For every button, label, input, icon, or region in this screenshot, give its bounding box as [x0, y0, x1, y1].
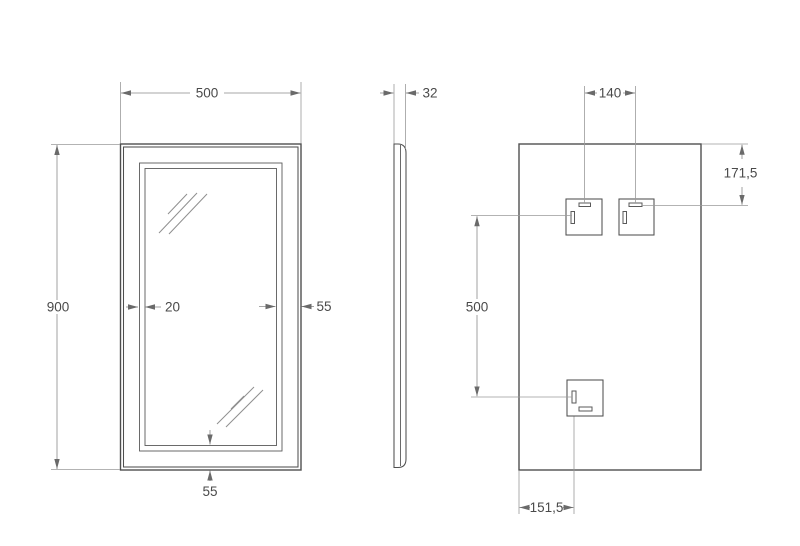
dim-back-top-offset: 171,5 [642, 144, 757, 206]
hatch-line [231, 396, 244, 409]
hatch-line [217, 387, 254, 424]
dim-front-frame-side: 55 [259, 299, 332, 314]
dimension-label: 55 [202, 484, 217, 499]
dim-front-inner-offset: 20 [126, 300, 180, 315]
dim-front-frame-bottom: 55 [202, 430, 217, 499]
mirror-technical-drawing: 500 900 20 55 55 [0, 0, 800, 546]
dim-back-left-offset: 151,5 [519, 417, 574, 516]
dimension-label: 55 [316, 299, 331, 314]
dim-side-depth: 32 [380, 84, 438, 149]
dimension-label: 32 [422, 86, 437, 101]
side-view: 32 [380, 84, 438, 468]
bracket-slot-vertical [572, 391, 576, 403]
dimension-label: 500 [196, 86, 219, 101]
back-view: 140 171,5 500 151,5 [466, 86, 758, 516]
dim-front-width: 500 [121, 82, 302, 144]
hatch-line [159, 193, 197, 233]
mirror-back-panel [519, 144, 701, 470]
dimension-label: 140 [599, 86, 622, 101]
bracket-slot-vertical [623, 212, 627, 224]
bracket-slot-vertical [571, 212, 575, 224]
mirror-side-profile [394, 144, 406, 468]
dimension-label: 171,5 [724, 166, 758, 181]
bracket-slot-horizontal [579, 203, 591, 207]
mounting-bracket-bottom [567, 380, 603, 416]
bracket-slot-horizontal [629, 203, 642, 207]
hatch-line [168, 194, 187, 214]
glass-reflection-hatch-bottom [217, 387, 263, 427]
drawing-svg: 500 900 20 55 55 [0, 0, 800, 546]
mounting-bracket-top-left [566, 199, 602, 235]
mounting-bracket-top-right [619, 199, 654, 235]
dimension-label: 20 [165, 300, 180, 315]
dimension-label: 151,5 [530, 500, 564, 515]
dimension-label: 900 [47, 300, 70, 315]
bracket-slot-horizontal [579, 407, 592, 411]
glass-reflection-hatch-top [159, 193, 207, 234]
hatch-line [169, 194, 207, 234]
dim-front-height: 900 [47, 145, 120, 470]
front-view: 500 900 20 55 55 [47, 82, 332, 499]
dimension-label: 500 [466, 300, 489, 315]
